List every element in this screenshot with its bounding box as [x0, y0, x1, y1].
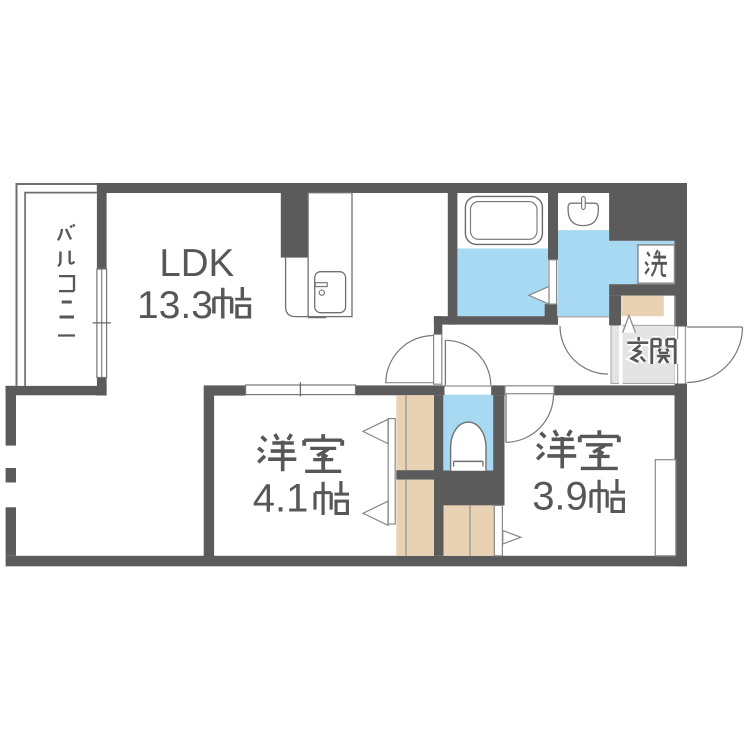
svg-text:LDK: LDK — [159, 242, 234, 285]
svg-text:4.1: 4.1 — [253, 477, 309, 521]
svg-text:3.9: 3.9 — [532, 475, 588, 519]
svg-text:13.3: 13.3 — [137, 284, 213, 327]
